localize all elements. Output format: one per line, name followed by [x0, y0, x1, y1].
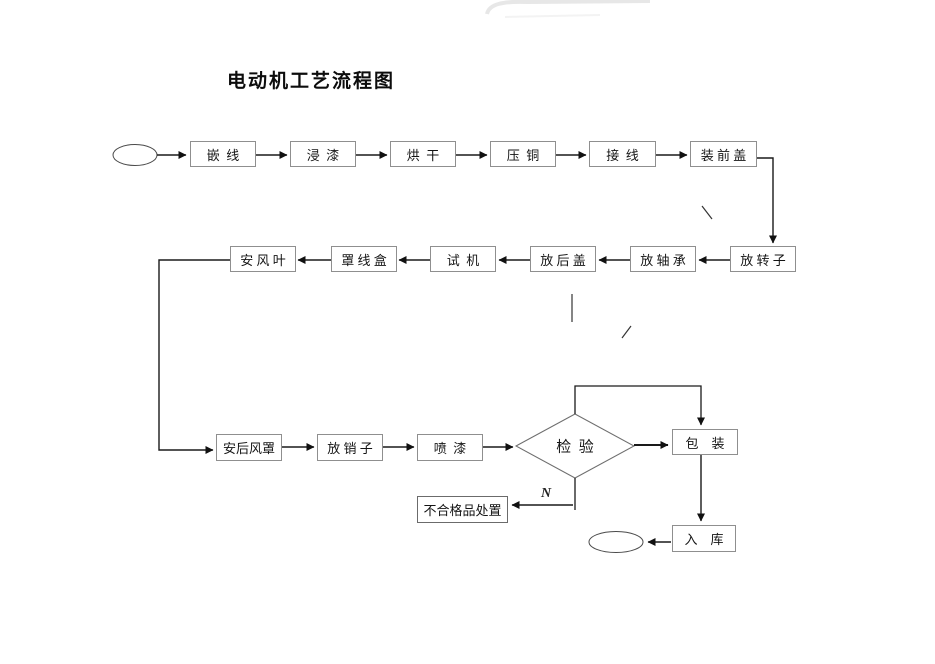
scan-artifact-line — [505, 15, 600, 17]
node-ruku: 入 库 — [672, 525, 736, 552]
node-jianyan-label: 检 验 — [556, 436, 594, 457]
start-terminator — [113, 145, 157, 166]
flowchart-page: 电动机工艺流程图 嵌 线 浸 漆 烘 干 压 铜 接 线 装 前 盖 放 转 子… — [0, 0, 935, 664]
stray-slash-mark — [622, 326, 631, 338]
node-jinqi: 浸 漆 — [290, 141, 356, 167]
node-baozhuang: 包 装 — [672, 429, 738, 455]
node-anfengye: 安 风 叶 — [230, 246, 296, 272]
node-yatong: 压 铜 — [490, 141, 556, 167]
scan-artifact-curve — [487, 1, 650, 14]
node-honggan: 烘 干 — [390, 141, 456, 167]
node-penqi: 喷 漆 — [417, 434, 483, 461]
flow-connectors — [0, 0, 935, 664]
node-zhuangqiangai: 装 前 盖 — [690, 141, 757, 167]
stray-backslash-mark — [702, 206, 712, 219]
connector-anfengye-anhoufengzhao — [159, 260, 230, 450]
node-fangxiaozi: 放 销 子 — [317, 434, 383, 461]
node-anhoufengzhao: 安后风罩 — [216, 434, 282, 461]
node-zhaoxianhe: 罩 线 盒 — [331, 246, 397, 272]
node-fangzhuanzi: 放 转 子 — [730, 246, 796, 272]
node-qianxian: 嵌 线 — [190, 141, 256, 167]
node-fangzhoucheng: 放 轴 承 — [630, 246, 696, 272]
end-terminator — [589, 532, 643, 553]
no-branch-label: N — [541, 486, 551, 502]
node-jiexian: 接 线 — [589, 141, 656, 167]
connector-zhuangqiangai-fangzhuanzi — [757, 158, 773, 243]
node-fanghougai: 放 后 盖 — [530, 246, 596, 272]
node-buhegepin: 不合格品处置 — [417, 496, 508, 523]
node-shiji: 试 机 — [430, 246, 496, 272]
connector-jianyan-top-baozhuang — [575, 386, 701, 425]
